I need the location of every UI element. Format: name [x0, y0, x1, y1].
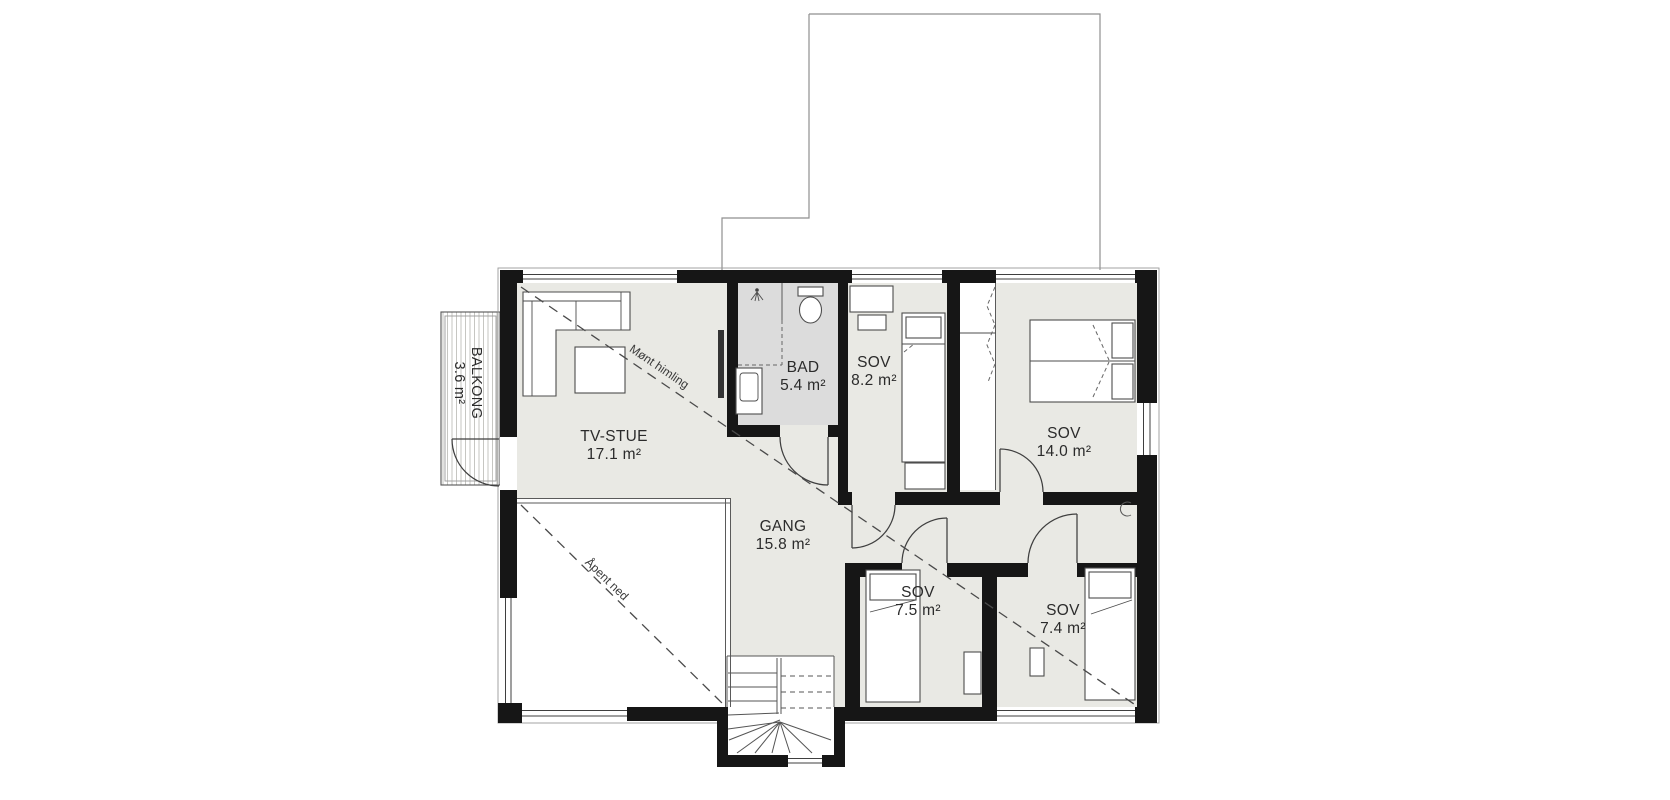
wall-right-lower [1137, 455, 1157, 723]
label-sov74: SOV [1046, 602, 1080, 619]
wall-bath-right [838, 283, 848, 505]
wall-sov75-left [845, 563, 860, 707]
wall-bottom-corner [1135, 707, 1157, 723]
window-top-tvstue [523, 270, 677, 283]
wall-top-3 [942, 270, 996, 283]
floor-plan-canvas: BALKONG 3.6 m² [0, 0, 1670, 800]
window-right-sov14 [1137, 403, 1157, 455]
label-sov14: SOV [1047, 425, 1081, 442]
wall-sov82-right [947, 283, 960, 505]
label-sov82-area: 8.2 m² [851, 372, 897, 389]
stairwell-wall-bottom-1 [717, 755, 788, 767]
label-sov14-area: 14.0 m² [1037, 443, 1092, 460]
wall-left-mid [500, 490, 517, 598]
window-left-void [500, 598, 517, 703]
balcony-area: 3.6 m² [451, 362, 467, 405]
label-sov75: SOV [901, 584, 935, 601]
shelf [1030, 648, 1044, 676]
stairwell-wall-bottom-2 [822, 755, 845, 767]
coffee-table [575, 347, 625, 393]
window-top-sov82 [852, 270, 942, 283]
balcony: BALKONG 3.6 m² [441, 312, 500, 485]
pillow [1089, 572, 1131, 598]
wall-bottom-1 [627, 707, 717, 721]
label-gang: GANG [760, 518, 807, 535]
toilet [798, 287, 823, 323]
pillow-2 [1112, 364, 1133, 399]
pillow-1 [1112, 323, 1133, 358]
label-bad-area: 5.4 m² [780, 377, 826, 394]
desk [850, 286, 893, 312]
wall-left-corner [498, 703, 522, 723]
balcony-label: BALKONG [468, 347, 484, 419]
wall-sov75-sov74 [982, 563, 997, 707]
window-bottom-sov74 [997, 707, 1135, 721]
window-bottom-void [522, 707, 627, 721]
nightstand [905, 463, 945, 489]
wall-corridor-upper-stub [848, 492, 852, 505]
chair [858, 315, 886, 330]
label-tv-stue-area: 17.1 m² [587, 446, 642, 463]
tv-screen [718, 330, 724, 398]
sink [736, 368, 762, 414]
label-tv-stue: TV-STUE [580, 428, 648, 445]
desk [964, 652, 981, 694]
open-void-area [517, 498, 731, 707]
wall-top-2 [677, 270, 852, 283]
wall-corridor-upper-1 [895, 492, 1000, 505]
label-sov75-area: 7.5 m² [895, 602, 941, 619]
label-gang-area: 15.8 m² [756, 536, 811, 553]
roof-outline [722, 14, 1100, 270]
window-top-sov14 [996, 270, 1135, 283]
wall-bottom-2 [845, 707, 997, 721]
roof-outline-right [809, 14, 1100, 270]
label-bad: BAD [787, 359, 820, 376]
wall-bath-bottom-1 [727, 425, 780, 437]
wall-bath-bottom-2 [828, 425, 838, 437]
roof-outline-left [722, 14, 809, 270]
pillow [906, 317, 941, 338]
window-stairwell [788, 755, 822, 767]
label-sov82: SOV [857, 354, 891, 371]
wall-right-upper [1137, 270, 1157, 403]
wall-left-upper [500, 270, 517, 437]
floor-plan-svg: BALKONG 3.6 m² [0, 0, 1670, 800]
label-sov74-area: 7.4 m² [1040, 620, 1086, 637]
